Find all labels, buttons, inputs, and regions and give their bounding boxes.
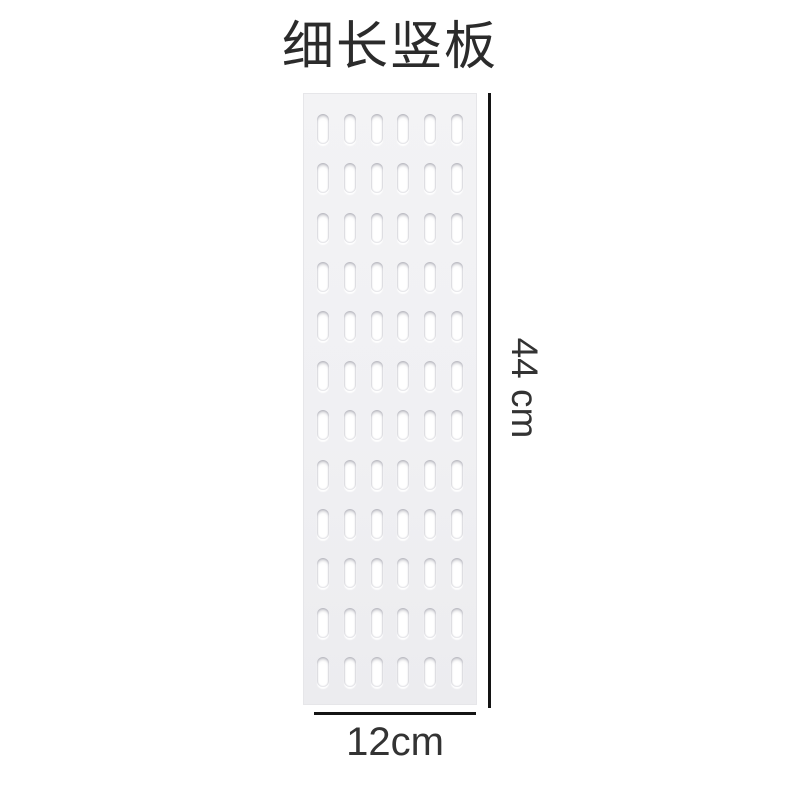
peg-slot — [451, 460, 463, 490]
peg-slot — [451, 163, 463, 193]
peg-slot — [397, 509, 409, 539]
peg-slot — [344, 262, 356, 292]
peg-slot — [397, 608, 409, 638]
page-title: 细长竖板 — [0, 4, 780, 79]
peg-slot — [397, 361, 409, 391]
peg-slot — [371, 657, 383, 687]
peg-slot — [317, 460, 329, 490]
peg-slot — [317, 657, 329, 687]
peg-slot — [397, 460, 409, 490]
peg-slot — [371, 262, 383, 292]
pegboard-panel — [303, 93, 477, 705]
peg-slot — [371, 114, 383, 144]
peg-slot — [397, 213, 409, 243]
peg-slot — [451, 114, 463, 144]
peg-slot — [397, 558, 409, 588]
peg-slot — [317, 361, 329, 391]
peg-slot — [451, 213, 463, 243]
peg-slot — [424, 410, 436, 440]
peg-slot — [451, 657, 463, 687]
peg-slot — [451, 262, 463, 292]
peg-slot — [317, 608, 329, 638]
peg-slot — [371, 558, 383, 588]
peg-slot — [344, 213, 356, 243]
peg-slot — [344, 311, 356, 341]
peg-slot — [344, 114, 356, 144]
peg-slot — [317, 213, 329, 243]
peg-slot — [344, 163, 356, 193]
peg-slot — [317, 163, 329, 193]
peg-slot — [424, 608, 436, 638]
height-dimension-label: 44 cm — [504, 318, 544, 458]
peg-slot — [371, 361, 383, 391]
peg-slot — [424, 509, 436, 539]
width-dimension-line — [314, 712, 476, 715]
peg-slot — [371, 213, 383, 243]
peg-slot — [344, 460, 356, 490]
product-dimension-figure: 细长竖板 44 cm 12cm — [0, 0, 800, 800]
peg-slot — [317, 410, 329, 440]
peg-slot — [424, 262, 436, 292]
peg-slot — [344, 361, 356, 391]
peg-slot — [371, 410, 383, 440]
peg-slot — [317, 509, 329, 539]
width-dimension-label: 12cm — [295, 720, 495, 765]
peg-slot — [424, 114, 436, 144]
peg-slot — [317, 262, 329, 292]
peg-slot — [451, 410, 463, 440]
peg-slot — [397, 410, 409, 440]
peg-slot — [451, 608, 463, 638]
peg-slot — [424, 311, 436, 341]
peg-slot — [344, 410, 356, 440]
peg-slot — [317, 114, 329, 144]
peg-slot — [371, 311, 383, 341]
peg-slot — [397, 163, 409, 193]
peg-slot — [397, 262, 409, 292]
peg-slot — [424, 361, 436, 391]
peg-slot — [451, 509, 463, 539]
peg-slot — [424, 213, 436, 243]
peg-slot — [424, 558, 436, 588]
peg-slot — [397, 114, 409, 144]
peg-slot — [451, 558, 463, 588]
peg-slot — [371, 460, 383, 490]
peg-slot — [451, 361, 463, 391]
peg-slot — [397, 657, 409, 687]
peg-slot — [451, 311, 463, 341]
peg-slot — [344, 657, 356, 687]
peg-slot — [317, 558, 329, 588]
peg-slot — [371, 509, 383, 539]
peg-slot — [371, 163, 383, 193]
peg-slot — [397, 311, 409, 341]
height-dimension-line — [488, 93, 491, 708]
peg-slot — [424, 460, 436, 490]
peg-slot — [344, 509, 356, 539]
peg-slot — [344, 608, 356, 638]
peg-slot — [424, 657, 436, 687]
peg-slot — [317, 311, 329, 341]
peg-slot — [371, 608, 383, 638]
peg-slot — [344, 558, 356, 588]
peg-slot — [424, 163, 436, 193]
